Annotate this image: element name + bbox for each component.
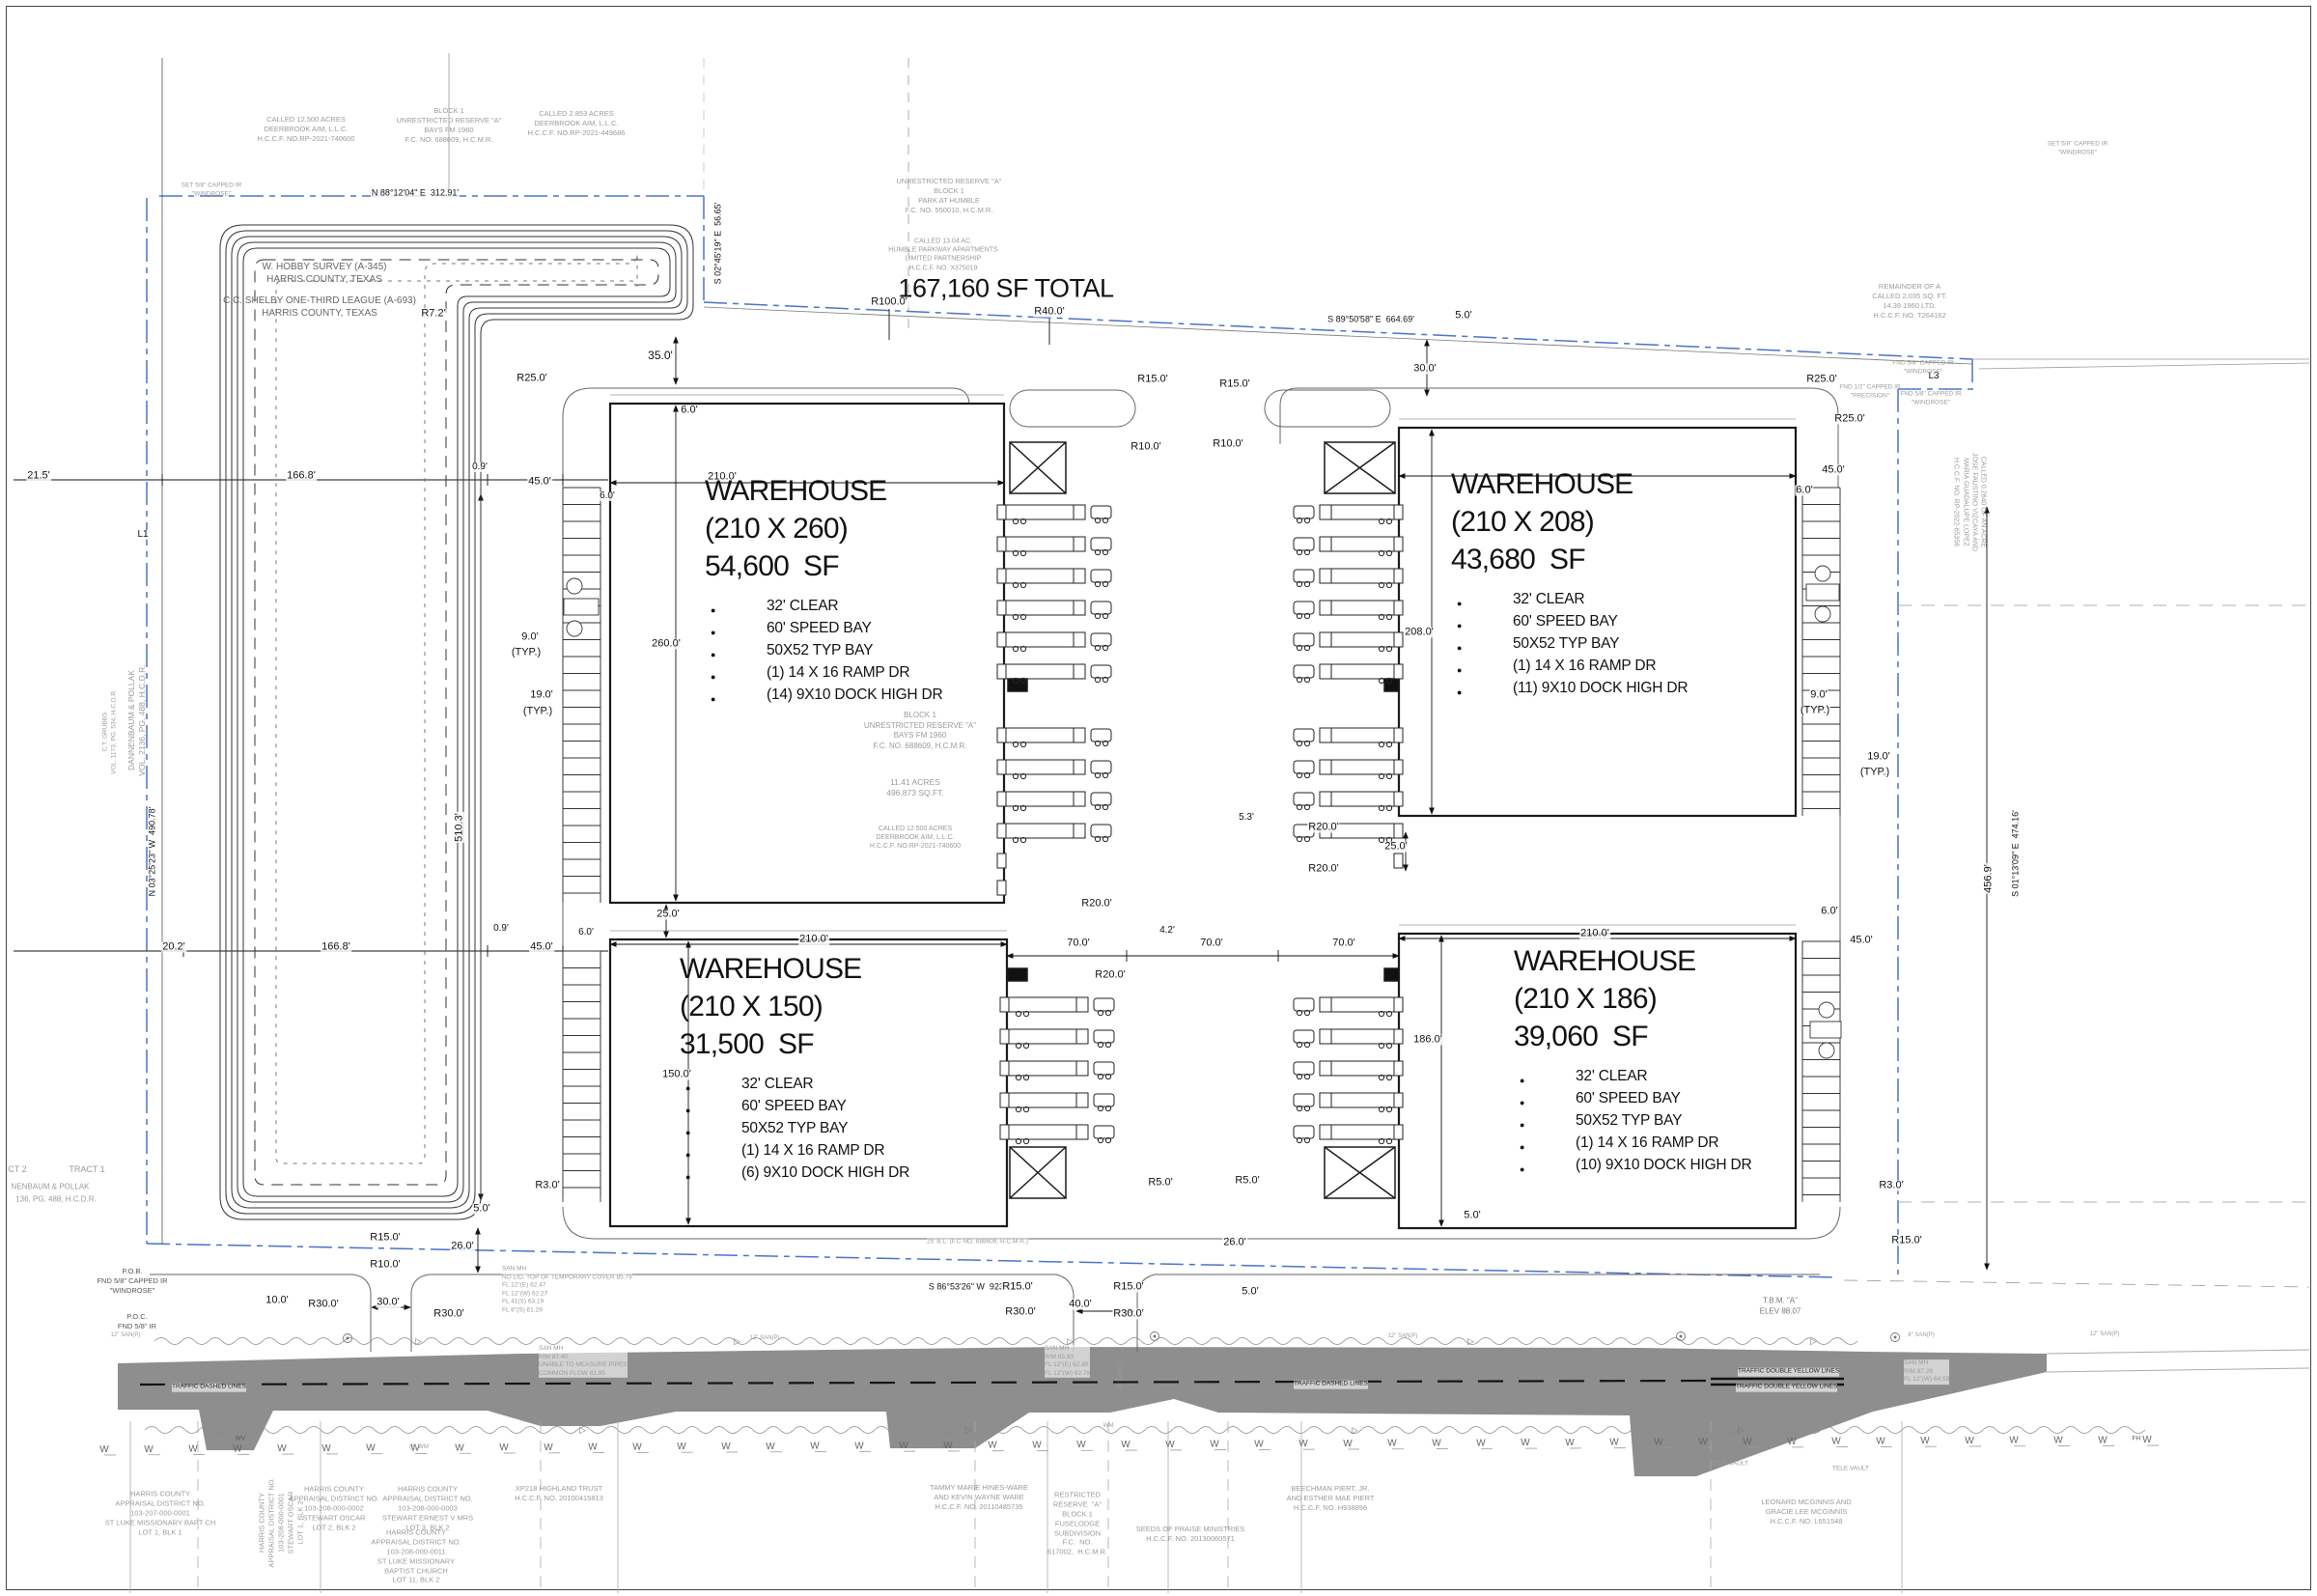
warehouse-feature: 32' CLEAR xyxy=(1457,588,1688,610)
parcel-note: CALLED 12.500 ACRES DEERBROOK AIM, L.L.C… xyxy=(258,115,355,144)
parking-stalls xyxy=(1802,488,1840,816)
svg-text:W: W xyxy=(632,1442,642,1452)
site-plan-sheet: WWWWWWWWWWWWWWWWWWWWWWWWWWWWWWWWWWWWWWWW… xyxy=(0,0,2317,1596)
site-total-area: 167,160 SF TOTAL xyxy=(898,274,1113,304)
warehouse-feature: (1) 14 X 16 RAMP DR xyxy=(1520,1132,1752,1154)
warehouse-feature: 50X52 TYP BAY xyxy=(685,1117,909,1139)
parcel-note: RESTRICTED RESERVE "A" BLOCK 1 FUSELODGE… xyxy=(1047,1490,1107,1556)
warehouse-title: WAREHOUSE (210 X 260) 54,600 SF xyxy=(705,472,943,585)
parcel-note: 12" SAN(P) xyxy=(750,1335,780,1343)
warehouse-feature: (14) 9X10 DOCK HIGH DR xyxy=(711,684,943,706)
warehouse-feature: 50X52 TYP BAY xyxy=(1457,632,1688,655)
dimension-label: 45.0' xyxy=(1821,465,1846,476)
parcel-note: CALLED 13.04 AC. HUMBLE PARKWAY APARTMEN… xyxy=(888,238,997,273)
warehouse-feature: (1) 14 X 16 RAMP DR xyxy=(711,661,943,684)
parcel-note: UNRESTRICTED RESERVE "A" BLOCK 1 PARK AT… xyxy=(897,177,1002,215)
svg-text:W: W xyxy=(499,1442,509,1453)
svg-text:W: W xyxy=(321,1443,331,1454)
parcel-note: WV xyxy=(236,1436,245,1444)
parcel-note: TRAFFIC DASHED LINES xyxy=(172,1384,246,1392)
dimension-label: 45.0' xyxy=(527,477,552,488)
warehouse-feature: 60' SPEED BAY xyxy=(1457,610,1688,632)
parcel-note: TRAFFIC DOUBLE YELLOW LINES xyxy=(1736,1384,1837,1392)
dimension-label: 26.0' xyxy=(450,1242,475,1252)
dimension-label: 210.0' xyxy=(1579,929,1610,939)
dimension-label: R25.0' xyxy=(1833,414,1865,425)
parcel-note: DANNENBAUM & POLLAK VOL. 2136, PG. 488, … xyxy=(126,664,148,775)
warehouse-feature: 32' CLEAR xyxy=(711,595,943,617)
parcel-note: T.B.M. "A" ELEV 88.07 xyxy=(1760,1296,1801,1316)
dimension-label: (TYP.) xyxy=(1859,768,1890,778)
svg-text:W: W xyxy=(677,1442,686,1452)
dimension-label: 40.0' xyxy=(1068,1300,1093,1310)
parcel-note: 11.41 ACRES 496,873 SQ.FT. xyxy=(886,777,944,798)
dimension-label: 260.0' xyxy=(651,639,682,650)
dimension-label: 6.0' xyxy=(680,406,698,416)
dimension-label: 456.9' xyxy=(1984,863,1995,894)
dimension-label: R20.0' xyxy=(1080,899,1112,910)
parcel-note: NENBAUM & POLLAK xyxy=(12,1183,90,1193)
parcel-note: BLOCK 1 UNRESTRICTED RESERVE "A" BAYS FM… xyxy=(397,106,502,145)
dimension-label: 9.0' xyxy=(520,632,539,643)
parcel-note: TRACT 1 xyxy=(69,1164,104,1176)
svg-text:W: W xyxy=(1343,1439,1353,1449)
svg-text:W: W xyxy=(1743,1437,1752,1447)
dimension-label: R20.0' xyxy=(1307,823,1339,833)
parcel-note: SAN MH RIM 85.93 FL 12"(E) 62.80 FL 12"(… xyxy=(1045,1345,1090,1378)
svg-text:▷: ▷ xyxy=(1352,1425,1358,1435)
dimension-label: 10.0' xyxy=(265,1296,290,1306)
dimension-label: 6.0' xyxy=(599,491,616,501)
svg-text:W: W xyxy=(2142,1435,2152,1445)
dimension-label: R15.0' xyxy=(1218,379,1250,390)
parcel-note: FND 5/8" CAPPED IR "WINDROSE" xyxy=(1892,359,1953,376)
svg-text:W: W xyxy=(1121,1440,1131,1450)
dimension-label: R10.0' xyxy=(1212,439,1243,450)
dimension-label: 166.8' xyxy=(286,471,317,482)
svg-text:W: W xyxy=(144,1444,154,1455)
dimension-label: R25.0' xyxy=(516,374,547,384)
dimension-label: 5.0' xyxy=(1463,1211,1481,1221)
parcel-note: CT 2 xyxy=(8,1164,26,1176)
parcel-note: HARRIS COUNTY APPRAISAL DISTRICT NO. 103… xyxy=(289,1484,378,1531)
dimension-label: 510.3' xyxy=(455,812,465,843)
parcel-note: TRAFFIC DASHED LINES xyxy=(1294,1381,1368,1389)
svg-text:W: W xyxy=(1920,1436,1930,1446)
svg-text:W: W xyxy=(721,1442,731,1452)
dimension-label: 5.0' xyxy=(1241,1287,1259,1298)
parcel-note: 136, PG. 488, H.C.D.R. xyxy=(15,1195,97,1206)
dimension-label: N 88°12'04" E 312.91' xyxy=(371,189,460,198)
dimension-label: 25.0' xyxy=(1383,842,1409,853)
dimension-label: S 02°45'19" E 56.65' xyxy=(714,202,723,286)
dimension-label: 5.3' xyxy=(1238,813,1255,823)
svg-text:W: W xyxy=(2053,1435,2063,1445)
dimension-label: R30.0' xyxy=(1004,1307,1036,1318)
svg-text:W: W xyxy=(1787,1437,1797,1447)
parcel-note: HARRIS COUNTY APPRAISAL DISTRICT NO. 103… xyxy=(105,1489,215,1536)
parking-stalls xyxy=(563,951,600,1202)
svg-text:W: W xyxy=(1565,1438,1575,1448)
svg-text:▷: ▷ xyxy=(1738,1425,1745,1435)
dimension-label: R15.0' xyxy=(1890,1236,1922,1246)
parcel-note: WM xyxy=(1103,1423,1114,1431)
truck-court-trucks xyxy=(1006,505,1399,1144)
dimension-label: 5.0' xyxy=(472,1204,490,1215)
parcel-note: CALLED 0.2640 OF AN ACRE JOSE FAUSTINO V… xyxy=(1952,453,1988,551)
parcel-note: 12" SAN(P) xyxy=(1388,1333,1418,1341)
parcel-note: SAN MH NO LID, TOP OF TEMPORARY COVER 85… xyxy=(502,1265,632,1314)
svg-text:W: W xyxy=(988,1441,997,1451)
parcel-note: TAMMY MARIE HINES-WARE AND KEVIN WAYNE W… xyxy=(930,1483,1028,1512)
dimension-label: R5.0' xyxy=(1147,1178,1173,1189)
dimension-label: 166.8' xyxy=(321,942,351,953)
parcel-note: REMAINDER OF A CALLED 2,035 SQ. FT. 14.3… xyxy=(1872,282,1947,321)
warehouse-feature: (10) 9X10 DOCK HIGH DR xyxy=(1520,1154,1752,1176)
svg-text:W: W xyxy=(1965,1436,1974,1446)
dimension-label: 20.2' xyxy=(161,942,186,953)
svg-text:W: W xyxy=(544,1442,553,1453)
svg-text:W: W xyxy=(1476,1438,1486,1448)
svg-text:W: W xyxy=(233,1443,242,1454)
svg-text:W: W xyxy=(277,1443,287,1454)
parcel-note: HARRIS COUNTY APPRAISAL DISTRICT NO. 103… xyxy=(371,1527,461,1584)
dimension-label: 30.0' xyxy=(1412,364,1438,375)
dimension-label: 186.0' xyxy=(1412,1035,1443,1046)
dimension-label: 5.0' xyxy=(1454,311,1472,322)
dimension-label: 0.9' xyxy=(471,462,489,472)
dimension-label: 70.0' xyxy=(1331,938,1356,949)
dimension-label: (TYP.) xyxy=(522,707,553,717)
dimension-label: R3.0' xyxy=(534,1181,560,1191)
svg-text:▷: ▷ xyxy=(734,1336,740,1346)
parcel-note: BLOCK 1 UNRESTRICTED RESERVE "A" BAYS FM… xyxy=(864,711,976,751)
svg-text:W: W xyxy=(1432,1439,1441,1449)
warehouse-feature: (11) 9X10 DOCK HIGH DR xyxy=(1457,677,1688,699)
dimension-label: R20.0' xyxy=(1307,864,1339,875)
dimension-label: R15.0' xyxy=(1112,1282,1144,1293)
parcel-note: BEECHMAN PIERT, JR. AND ESTHER MAE PIERT… xyxy=(1287,1484,1375,1513)
svg-text:W: W xyxy=(1032,1440,1042,1450)
warehouse-feature: (1) 14 X 16 RAMP DR xyxy=(685,1139,909,1162)
warehouse-feature: 32' CLEAR xyxy=(1520,1065,1752,1087)
parcel-note: SET 5/8" CAPPED IR "WINDROSE" xyxy=(2048,140,2108,156)
parcel-note: 12" SAN(P) xyxy=(2090,1331,2120,1339)
dimension-label: 26.0' xyxy=(1222,1238,1247,1248)
svg-text:W: W xyxy=(766,1442,775,1452)
parcel-note: (3) WM xyxy=(409,1444,429,1452)
warehouse-feature: 50X52 TYP BAY xyxy=(1520,1109,1752,1132)
dimension-label: 19.0' xyxy=(1866,752,1891,763)
svg-text:W: W xyxy=(1076,1440,1086,1450)
dimension-label: 35.0' xyxy=(647,350,674,361)
parcel-note: 8" SAN(P) xyxy=(1908,1332,1934,1340)
svg-text:W: W xyxy=(1831,1437,1841,1447)
warehouse-feature: 60' SPEED BAY xyxy=(685,1095,909,1117)
dimension-label: R10.0' xyxy=(1130,442,1161,453)
dimension-label: R15.0' xyxy=(1136,375,1168,385)
svg-text:W: W xyxy=(1609,1438,1619,1448)
dimension-label: 45.0' xyxy=(1849,936,1874,946)
warehouse-feature: (1) 14 X 16 RAMP DR xyxy=(1457,655,1688,677)
warehouse-feature: (6) 9X10 DOCK HIGH DR xyxy=(685,1162,909,1184)
dimension-label: 0.9' xyxy=(492,924,510,934)
dimension-label: R40.0' xyxy=(1033,307,1065,318)
svg-text:W: W xyxy=(188,1444,198,1455)
dimension-label: 25.0' xyxy=(656,910,681,920)
dimension-label: 30.0' xyxy=(376,1298,401,1308)
svg-text:▷: ▷ xyxy=(1810,1336,1817,1346)
dimension-label: 210.0' xyxy=(798,935,829,945)
warehouse-features: 32' CLEAR60' SPEED BAY50X52 TYP BAY(1) 1… xyxy=(1457,588,1688,699)
svg-text:W: W xyxy=(899,1441,908,1451)
dimension-label: 70.0' xyxy=(1199,938,1224,949)
svg-text:▷: ▷ xyxy=(965,1425,972,1435)
parcel-note: FND 1/2" CAPPED IR "PRECISION" xyxy=(1839,383,1900,400)
dimension-label: R5.0' xyxy=(1234,1176,1260,1187)
dimension-label: 45.0' xyxy=(529,942,554,953)
parcel-note: TELE VAULT xyxy=(1832,1466,1869,1474)
dimension-label: R30.0' xyxy=(307,1300,339,1310)
dimension-label: L1 xyxy=(136,530,149,540)
svg-text:W: W xyxy=(1698,1437,1708,1447)
parcel-note: 8" SAN(P) xyxy=(1118,1361,1126,1387)
parcel-note: XP218 HIGHLAND TRUST H.C.C.F. NO. 201004… xyxy=(515,1484,603,1503)
parcel-note: 12" SAN(P) xyxy=(111,1332,141,1340)
warehouse-4-label: WAREHOUSE (210 X 186) 39,060 SF32' CLEAR… xyxy=(1514,942,1752,1176)
dimension-label: (TYP.) xyxy=(511,648,542,658)
svg-text:W: W xyxy=(1298,1439,1308,1449)
dimension-label: R25.0' xyxy=(1805,375,1837,385)
svg-text:W: W xyxy=(1254,1439,1264,1449)
svg-text:▷: ▷ xyxy=(579,1425,586,1435)
svg-text:W: W xyxy=(854,1441,864,1451)
dimension-label: 208.0' xyxy=(1404,628,1435,638)
parcel-note: SET 5/8" CAPPED IR "WINDROSE" xyxy=(181,182,242,198)
svg-text:W: W xyxy=(99,1444,109,1455)
svg-text:W: W xyxy=(943,1441,953,1451)
dimension-label: R3.0' xyxy=(1878,1181,1904,1191)
dimension-label: R10.0' xyxy=(369,1260,401,1271)
warehouse-feature: 60' SPEED BAY xyxy=(1520,1087,1752,1109)
warehouse-features: 32' CLEAR60' SPEED BAY50X52 TYP BAY(1) 1… xyxy=(685,1073,909,1184)
ramp-doors xyxy=(1008,442,1399,1198)
svg-text:W: W xyxy=(2009,1436,2019,1446)
road xyxy=(118,1347,2309,1476)
svg-text:▷: ▷ xyxy=(1467,1336,1474,1346)
dimension-label: R15.0' xyxy=(1001,1282,1033,1293)
svg-text:W: W xyxy=(455,1442,464,1453)
parcel-note: C.T. GRUBBS VOL. 1173, PG. 534, H.C.D.R. xyxy=(101,689,118,774)
parcel-note: 25' B.L. (F.C NO. 688609, H.C.M.R.) xyxy=(927,1239,1028,1247)
parcel-note: SAN MH RIM 87.26 FL 12"(W) 64.59 xyxy=(1904,1359,1949,1385)
parcel-note: W. HOBBY SURVEY (A-345) HARRIS COUNTY, T… xyxy=(263,261,387,286)
dimension-label: R30.0' xyxy=(433,1309,464,1320)
dimension-label: 6.0' xyxy=(577,928,595,938)
parcel-note: P.O.B. FND 5/8" CAPPED IR "WINDROSE" xyxy=(97,1267,167,1296)
svg-text:W: W xyxy=(1876,1436,1885,1446)
svg-text:W: W xyxy=(1521,1438,1530,1448)
warehouse-features: 32' CLEAR60' SPEED BAY50X52 TYP BAY(1) 1… xyxy=(1520,1065,1752,1176)
warehouse-1-label: WAREHOUSE (210 X 260) 54,600 SF32' CLEAR… xyxy=(705,472,943,706)
dimension-label: 21.5' xyxy=(26,471,51,482)
warehouse-title: WAREHOUSE (210 X 208) 43,680 SF xyxy=(1451,465,1688,578)
dimension-label: N 03°25'23" W 490.78' xyxy=(149,806,157,898)
warehouse-feature: 50X52 TYP BAY xyxy=(711,639,943,661)
parking-stalls xyxy=(563,488,600,903)
svg-text:W: W xyxy=(810,1442,820,1452)
dimension-label: (TYP.) xyxy=(1800,706,1830,716)
svg-text:W: W xyxy=(588,1442,598,1453)
dimension-label: R7.2' xyxy=(420,309,446,320)
parcel-note: HARRIS COUNTY APPRAISAL DISTRICT NO. 103… xyxy=(382,1484,473,1531)
parcel-note: LEONARD MCGINNIS AND GRACIE LEE MCGINNIS… xyxy=(1761,1498,1851,1526)
dimension-label: R15.0' xyxy=(369,1233,401,1244)
dimension-label: R20.0' xyxy=(1094,970,1126,981)
dimension-label: 6.0' xyxy=(1820,907,1838,917)
parcel-note: CALLED 12.500 ACRES DEERBROOK AIM, L.L.C… xyxy=(870,825,961,852)
parcel-note: SEEDS OF PRAISE MINISTRIES H.C.C.F. NO. … xyxy=(1136,1525,1245,1544)
dimension-label: 70.0' xyxy=(1066,938,1091,949)
dimension-label: 9.0' xyxy=(1809,690,1828,701)
parcel-note: SAN MH RIM 87.40 UNABLE TO MEASURE PIPES… xyxy=(539,1345,628,1378)
dimension-label: 19.0' xyxy=(529,690,554,701)
parcel-note: FH xyxy=(2133,1436,2141,1444)
svg-text:W: W xyxy=(1210,1440,1219,1450)
warehouse-3-label: WAREHOUSE (210 X 150) 31,500 SF32' CLEAR… xyxy=(680,950,909,1184)
svg-text:W: W xyxy=(1387,1439,1397,1449)
parcel-note: C.C. SHELBY ONE-THIRD LEAGUE (A-693) HAR… xyxy=(223,294,416,320)
dimension-label: S 89°50'58" E 664.69' xyxy=(1326,316,1415,324)
parcel-note: FND 5/8" CAPPED IR "WINDROSE" xyxy=(1900,390,1961,406)
svg-text:▷: ▷ xyxy=(415,1336,422,1346)
warehouse-features: 32' CLEAR60' SPEED BAY50X52 TYP BAY(1) 1… xyxy=(711,595,943,706)
warehouse-title: WAREHOUSE (210 X 150) 31,500 SF xyxy=(680,950,909,1063)
parcel-note: CALLED 2.853 ACRES DEERBROOK AIM, L.L.C.… xyxy=(528,109,626,138)
dimension-label: R100.0' xyxy=(870,297,908,308)
warehouse-title: WAREHOUSE (210 X 186) 39,060 SF xyxy=(1514,942,1752,1055)
parcel-note: TELE VAULT xyxy=(1712,1461,1748,1470)
parking-stalls xyxy=(1802,941,1840,1202)
warehouse-2-label: WAREHOUSE (210 X 208) 43,680 SF32' CLEAR… xyxy=(1451,465,1688,699)
site-plan-drawing: WWWWWWWWWWWWWWWWWWWWWWWWWWWWWWWWWWWWWWWW… xyxy=(0,0,2317,1596)
parcel-note: P.O.C. FND 5/8" IR xyxy=(118,1312,156,1331)
dimension-label: S 01°13'09" E 474.16' xyxy=(2012,809,2021,898)
svg-text:W: W xyxy=(1165,1440,1175,1450)
dimension-label: 4.2' xyxy=(1158,926,1176,936)
dimension-label: R30.0' xyxy=(1112,1309,1144,1320)
warehouse-feature: 32' CLEAR xyxy=(685,1073,909,1095)
parcel-note: TRAFFIC DOUBLE YELLOW LINES xyxy=(1738,1368,1839,1377)
svg-text:W: W xyxy=(1654,1437,1663,1447)
svg-text:W: W xyxy=(366,1443,376,1454)
svg-text:W: W xyxy=(2098,1435,2108,1445)
warehouse-feature: 60' SPEED BAY xyxy=(711,617,943,639)
dimension-label: 6.0' xyxy=(1795,486,1813,496)
